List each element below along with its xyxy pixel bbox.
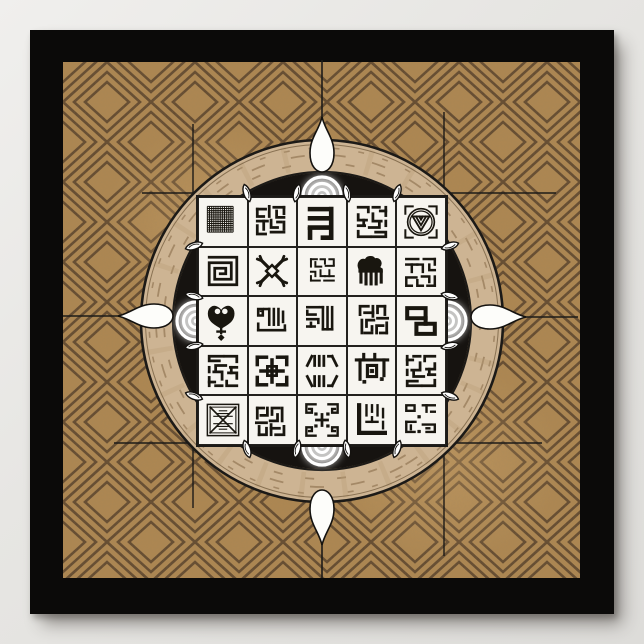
gourd-ornament-north: [310, 117, 334, 172]
leaf-marker-north-3: [342, 183, 352, 202]
leaf-marker-north-4: [391, 183, 403, 202]
leaf-marker-east-3: [440, 341, 459, 351]
leaf-marker-east-1: [440, 240, 459, 252]
leaf-marker-west-3: [184, 341, 203, 351]
leaf-marker-east-4: [440, 390, 459, 402]
gourd-ornament-east: [471, 305, 526, 329]
medallion-ornaments: [30, 30, 614, 614]
leaf-marker-west-4: [184, 390, 203, 402]
leaf-marker-south-4: [391, 439, 403, 458]
leaf-marker-west-2: [184, 291, 203, 302]
leaf-marker-west-1: [184, 240, 203, 252]
gourd-ornament-south: [310, 490, 334, 545]
leaf-marker-east-2: [440, 291, 459, 302]
poster-frame: [30, 30, 614, 614]
gourd-ornament-west: [118, 304, 173, 328]
leaf-marker-south-2: [292, 439, 303, 458]
leaf-marker-south-1: [241, 439, 253, 458]
leaf-marker-north-2: [292, 183, 303, 202]
leaf-markers: [184, 183, 459, 458]
leaf-marker-north-1: [241, 183, 253, 202]
leaf-marker-south-3: [342, 439, 352, 458]
page-background: [0, 0, 644, 644]
